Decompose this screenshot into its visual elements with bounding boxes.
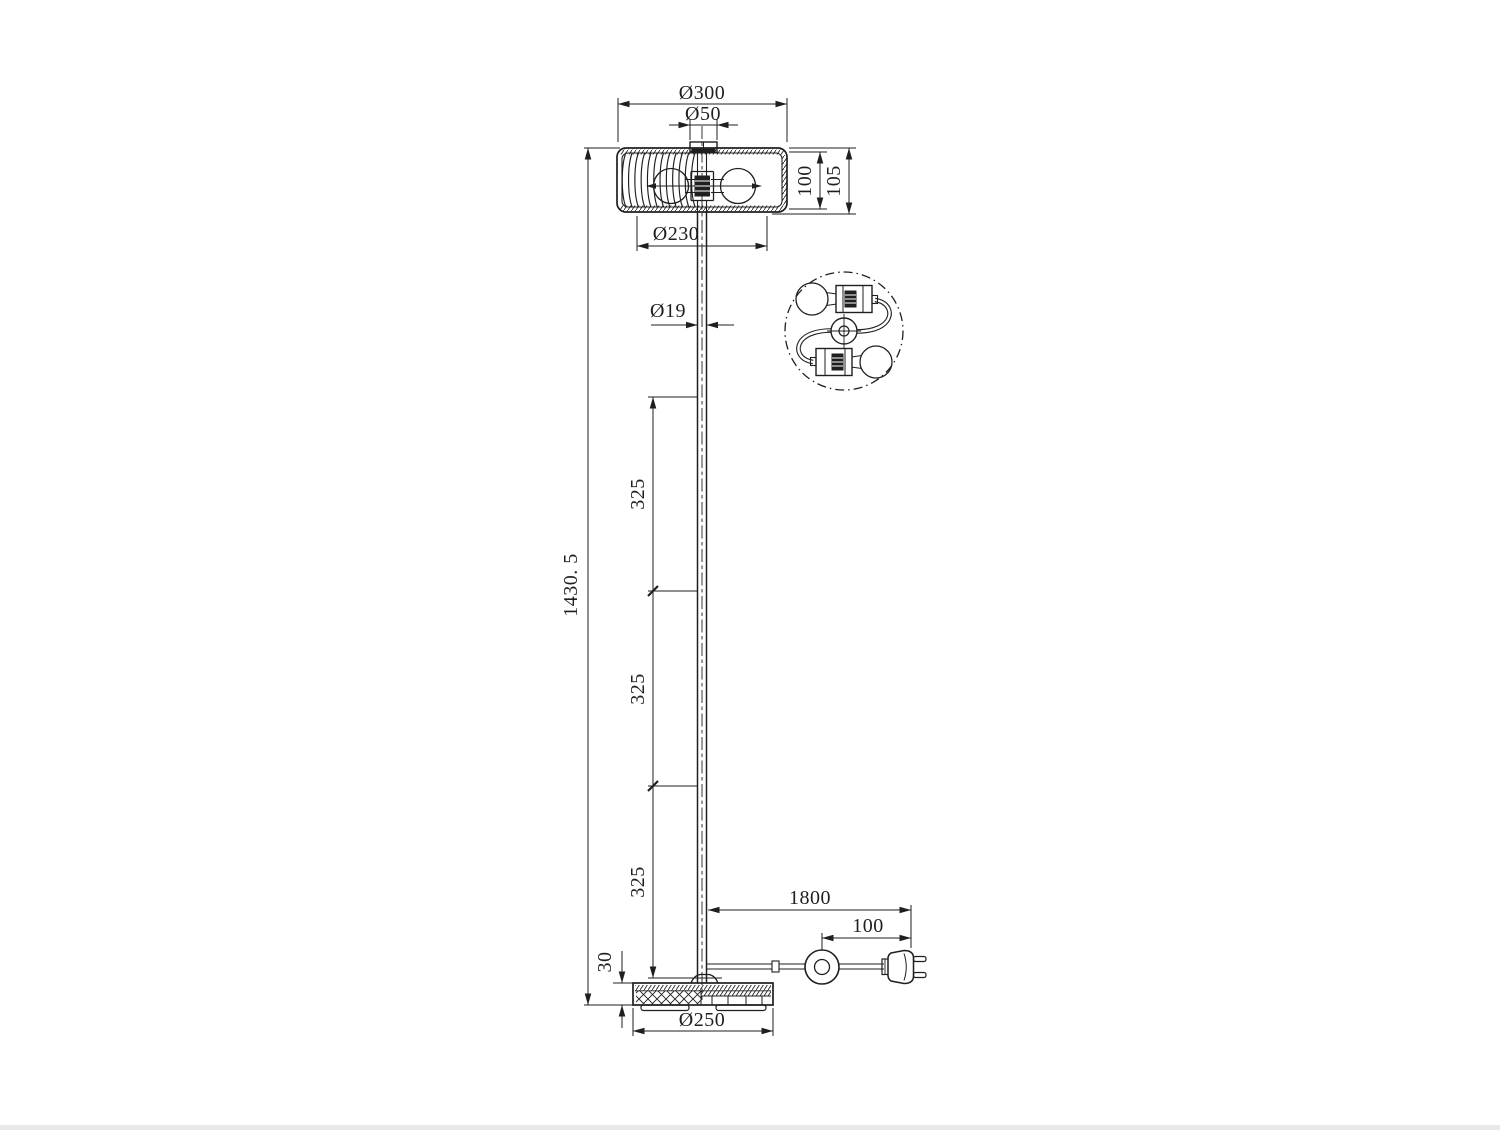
dim-overall-height: 1430. 5 <box>560 148 631 1005</box>
detail-lower-lamp <box>811 346 893 378</box>
dim-label-shade-overall-height: 105 <box>823 165 845 197</box>
dim-label-base-thickness: 30 <box>594 952 616 973</box>
dim-base-diameter: Ø250 <box>633 1008 773 1036</box>
dim-pole-segments: 325 325 325 <box>627 397 722 978</box>
dim-label-cord-length: 1800 <box>789 887 831 909</box>
shade-right-wall <box>782 155 787 205</box>
power-plug <box>882 951 926 984</box>
base <box>633 975 773 1011</box>
plug-pin-bottom <box>914 973 927 978</box>
dim-label-shade-inner-height: 100 <box>794 165 816 197</box>
dim-label-pole-segment-middle: 325 <box>627 673 649 705</box>
power-cord <box>707 950 926 984</box>
plug-pin-top <box>914 957 927 962</box>
dim-label-switch-to-plug: 100 <box>852 915 884 937</box>
dim-label-pole-segment-upper: 325 <box>627 478 649 510</box>
cord-connector <box>772 961 779 972</box>
dim-base-thickness: 30 <box>594 951 633 1028</box>
pole-foot <box>691 975 718 984</box>
detail-upper-lamp <box>796 283 878 315</box>
detail-view-sockets-top <box>785 272 903 390</box>
dim-top-cap-diameter: Ø50 <box>669 103 738 140</box>
dim-pole-diameter: Ø19 <box>650 300 734 325</box>
dim-label-shade-inner-diameter: Ø230 <box>653 223 699 245</box>
dimensions: Ø300 Ø50 100 105 <box>560 82 911 1036</box>
base-section-hatch <box>636 991 701 1004</box>
floor-lamp-dimension-drawing: Ø300 Ø50 100 105 <box>0 0 1500 1125</box>
technical-drawing-page: Ø300 Ø50 100 105 <box>0 0 1500 1125</box>
dim-label-overall-height: 1430. 5 <box>560 553 582 617</box>
dim-switch-to-plug: 100 <box>822 915 911 950</box>
detail-pole-hub <box>827 314 861 348</box>
foot-switch <box>805 950 839 984</box>
bulb-tip-right <box>752 183 762 188</box>
dim-label-base-diameter: Ø250 <box>679 1009 725 1031</box>
dim-label-top-cap-diameter: Ø50 <box>685 103 721 125</box>
dim-shade-inner-height: 100 <box>789 152 827 209</box>
dim-label-pole-segment-lower: 325 <box>627 866 649 898</box>
dim-label-shade-outer-diameter: Ø300 <box>679 82 725 104</box>
dim-label-pole-diameter: Ø19 <box>650 300 686 322</box>
base-compartments <box>701 996 771 1005</box>
